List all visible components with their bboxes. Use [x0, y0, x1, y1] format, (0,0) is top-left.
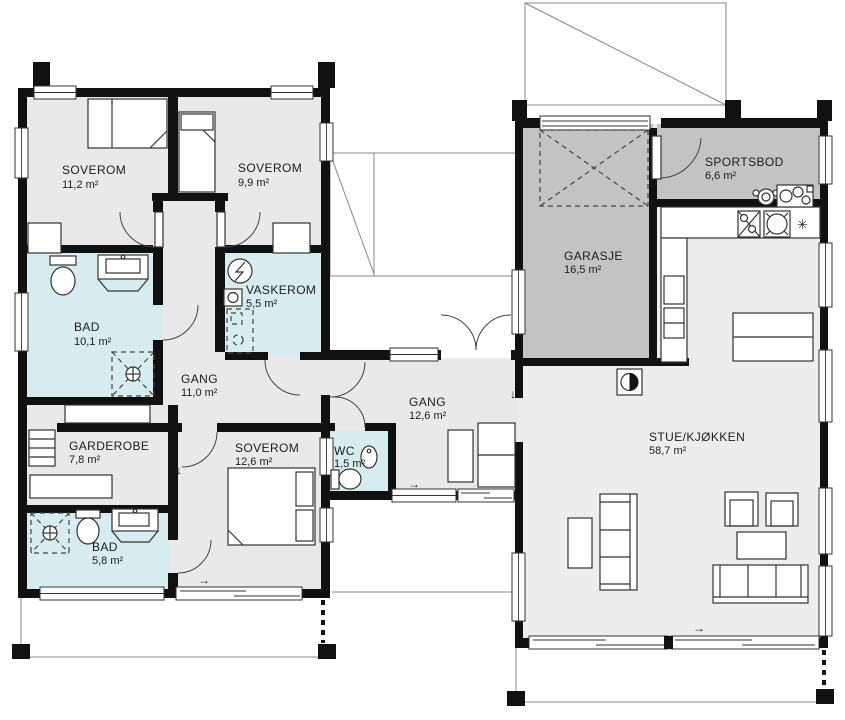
window [819, 488, 832, 554]
door-arc-entry-right [476, 315, 511, 350]
label-gang-1: GANG 11,0 m² [181, 372, 218, 399]
entry-porch-outline [330, 153, 517, 276]
driveway-diagonal [525, 3, 726, 105]
fan-symbol-vaskerom [228, 259, 252, 283]
svg-text:10,1 m²: 10,1 m² [74, 336, 112, 348]
exit-arrow-entry-hall: → [408, 477, 420, 491]
svg-text:GARASJE: GARASJE [564, 249, 623, 263]
toilet-bad-1 [50, 256, 76, 295]
window [512, 553, 525, 621]
kitchen-sink [738, 211, 760, 237]
window [34, 86, 76, 99]
floor-plan-svg: ✳ [0, 0, 845, 720]
floors [22, 92, 824, 642]
post-terrace-left-1 [12, 644, 30, 659]
sliding-door [458, 489, 514, 502]
entry-porch-diagonal [330, 153, 374, 274]
door-arc-entry-left [441, 315, 476, 350]
sliding-door [176, 587, 302, 600]
window [15, 293, 28, 351]
window [819, 136, 832, 184]
bed-soverom-1 [88, 99, 167, 148]
wardrobe-gang [65, 405, 150, 423]
sliding-door [671, 636, 819, 649]
wardrobe-soverom-2 [273, 223, 310, 253]
post-terrace-right-1 [507, 691, 525, 706]
svg-text:VASKEROM: VASKEROM [246, 283, 316, 297]
window [390, 348, 438, 361]
svg-text:58,7 m²: 58,7 m² [649, 445, 687, 457]
shelf-garderobe [29, 430, 55, 466]
window [40, 587, 164, 600]
kitchen-island [733, 313, 813, 361]
svg-text:STUE/KJØKKEN: STUE/KJØKKEN [649, 430, 745, 444]
kitchen-cooktop [764, 211, 790, 237]
svg-text:9,9 m²: 9,9 m² [238, 177, 270, 189]
exit-arrow-living: → [693, 621, 705, 635]
svg-text:GANG: GANG [409, 395, 446, 409]
washing-machine-vaskerom [224, 289, 242, 306]
garage-door [540, 116, 650, 130]
sofa [713, 565, 808, 603]
svg-text:5,5 m²: 5,5 m² [246, 298, 278, 310]
threshold-arrow-stue: ↓ [510, 387, 516, 401]
bed-soverom-2 [179, 112, 215, 192]
svg-text:7,8 m²: 7,8 m² [69, 454, 101, 466]
svg-text:SOVEROM: SOVEROM [235, 441, 299, 455]
mullion [664, 636, 673, 649]
svg-text:GANG: GANG [181, 372, 218, 386]
window [512, 270, 525, 334]
svg-text:SPORTSBOD: SPORTSBOD [705, 155, 784, 169]
wood-stove [617, 369, 642, 395]
svg-text:BAD: BAD [74, 320, 100, 334]
svg-text:SOVEROM: SOVEROM [238, 161, 302, 175]
chaise-sofa [600, 494, 637, 590]
sliding-door [529, 636, 668, 649]
exit-arrow-bedroom-wing: → [198, 573, 210, 587]
door-leaf-soverom-1 [155, 212, 163, 247]
svg-text:12,6 m²: 12,6 m² [235, 456, 273, 468]
armchair-2 [766, 493, 798, 526]
armchair-1 [725, 492, 758, 526]
toilet-bad-2 [76, 510, 100, 544]
toilet-wc [331, 469, 361, 489]
window [819, 243, 832, 307]
post-living-wing-3 [817, 100, 832, 121]
window [271, 86, 313, 99]
post-ne-bedroom-wing [318, 62, 335, 88]
wardrobe-garderobe [30, 475, 112, 498]
window [15, 128, 28, 178]
window [819, 566, 832, 636]
bed-soverom-3 [228, 468, 315, 545]
svg-text:12,6 m²: 12,6 m² [409, 410, 447, 422]
post-terrace-left-2 [318, 644, 336, 659]
threshold-arrow-soverom-3: ↓ [176, 463, 182, 477]
wardrobe-soverom-1 [28, 223, 61, 253]
fridge-symbol: ✳ [797, 217, 808, 232]
side-table [568, 518, 592, 568]
post-living-wing-2 [725, 100, 741, 121]
svg-text:16,5 m²: 16,5 m² [564, 264, 602, 276]
floor-garasje [523, 124, 653, 360]
bench-gang-2 [448, 430, 473, 482]
window [320, 123, 333, 161]
sportsbod-unit [777, 185, 813, 207]
post-nw [33, 62, 50, 88]
floor-plan: ✳ [0, 0, 845, 720]
svg-text:5,8 m²: 5,8 m² [92, 555, 124, 567]
svg-text:WC: WC [334, 444, 355, 458]
post-living-wing-1 [512, 100, 527, 121]
window [320, 508, 333, 542]
svg-text:SOVEROM: SOVEROM [62, 163, 126, 177]
window [392, 489, 456, 502]
window [819, 350, 832, 422]
svg-text:GARDEROBE: GARDEROBE [69, 439, 149, 453]
door-leaf-soverom-2 [217, 212, 225, 247]
svg-text:11,2 m²: 11,2 m² [62, 179, 99, 191]
coffee-table [737, 532, 786, 559]
svg-text:1,5 m²: 1,5 m² [334, 458, 366, 470]
svg-text:BAD: BAD [92, 540, 118, 554]
svg-text:6,6 m²: 6,6 m² [705, 170, 737, 182]
post-terrace-right-2 [816, 689, 834, 704]
door-leaf-sportsbod [652, 136, 661, 179]
wardrobe-gang-2 [478, 423, 515, 487]
svg-text:11,0 m²: 11,0 m² [181, 387, 218, 399]
label-gang-2: GANG 12,6 m² [409, 395, 447, 422]
